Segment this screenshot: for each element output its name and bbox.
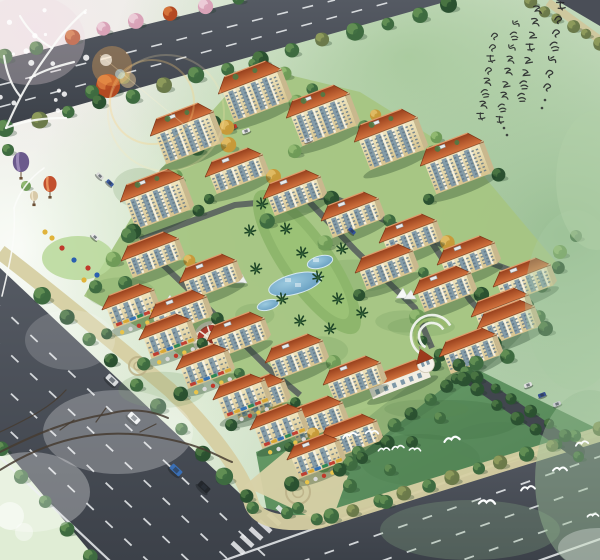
tree: [431, 132, 446, 144]
tree: [156, 77, 175, 93]
tree: [62, 106, 77, 118]
play-equipment: [81, 277, 86, 282]
tree: [440, 0, 460, 13]
scene-canvas: [0, 0, 600, 560]
calligraphy: [477, 2, 565, 137]
play-equipment: [42, 229, 47, 234]
tree: [126, 89, 144, 104]
hot-air-balloon: [30, 191, 38, 206]
tree: [195, 446, 214, 462]
fog-wash: [25, 310, 115, 370]
aerial-rendering: Residential community aerial master-plan…: [0, 0, 600, 560]
play-equipment: [59, 245, 64, 250]
tree: [163, 6, 181, 20]
play-equipment: [85, 265, 90, 270]
car: [523, 381, 534, 390]
fog-wash: [380, 500, 560, 560]
tree: [315, 32, 332, 46]
tree: [285, 43, 303, 58]
tree: [198, 0, 216, 14]
tree: [524, 0, 540, 8]
play-equipment: [94, 272, 99, 277]
tree: [412, 7, 431, 23]
car: [537, 391, 548, 400]
car: [94, 171, 105, 182]
play-equipment: [71, 257, 76, 262]
tree: [128, 13, 147, 29]
hot-air-balloon: [13, 152, 29, 180]
tree: [96, 22, 113, 36]
tree: [346, 23, 367, 41]
hot-air-balloon: [43, 176, 56, 199]
tree: [382, 18, 398, 31]
play-equipment: [49, 235, 54, 240]
tree: [2, 144, 17, 156]
playground: [42, 236, 114, 280]
